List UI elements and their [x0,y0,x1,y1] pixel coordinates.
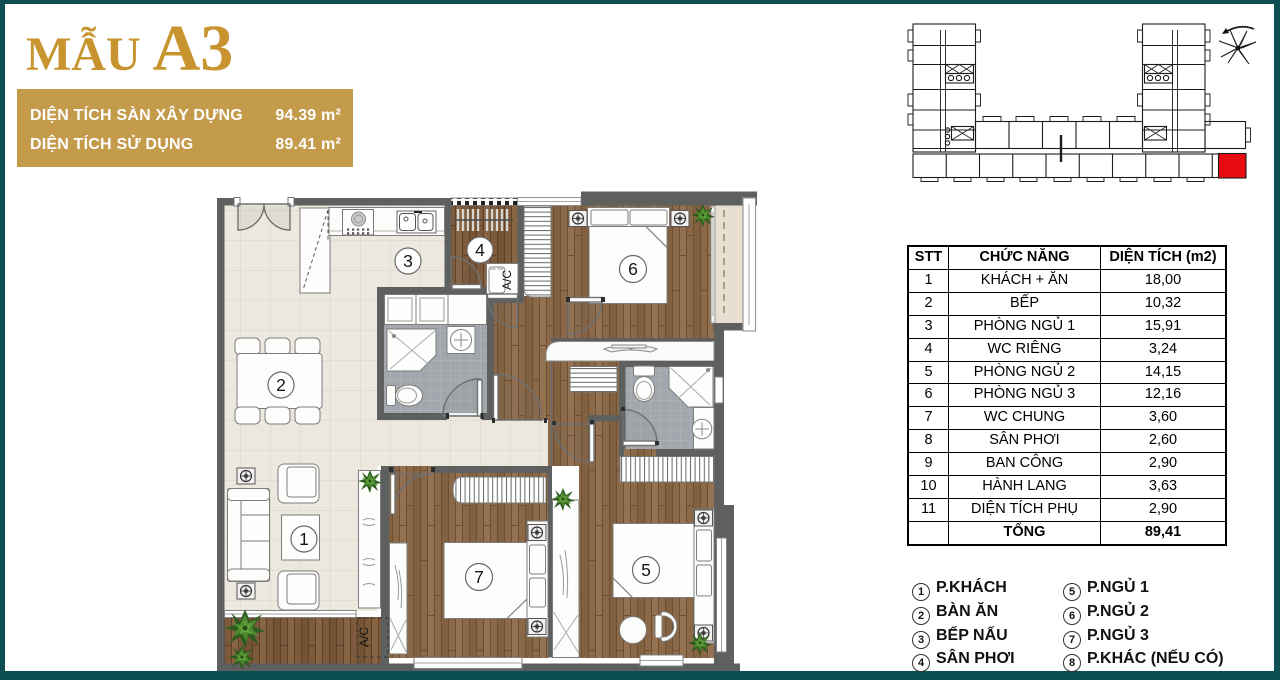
svg-text:4: 4 [475,240,485,260]
svg-text:1: 1 [299,529,309,549]
svg-text:2: 2 [276,375,286,395]
svg-text:A/C: A/C [500,270,514,290]
svg-text:A/C: A/C [357,627,371,647]
svg-text:6: 6 [628,259,638,279]
svg-text:5: 5 [641,560,651,580]
svg-text:7: 7 [474,567,484,587]
svg-text:3: 3 [403,251,413,271]
